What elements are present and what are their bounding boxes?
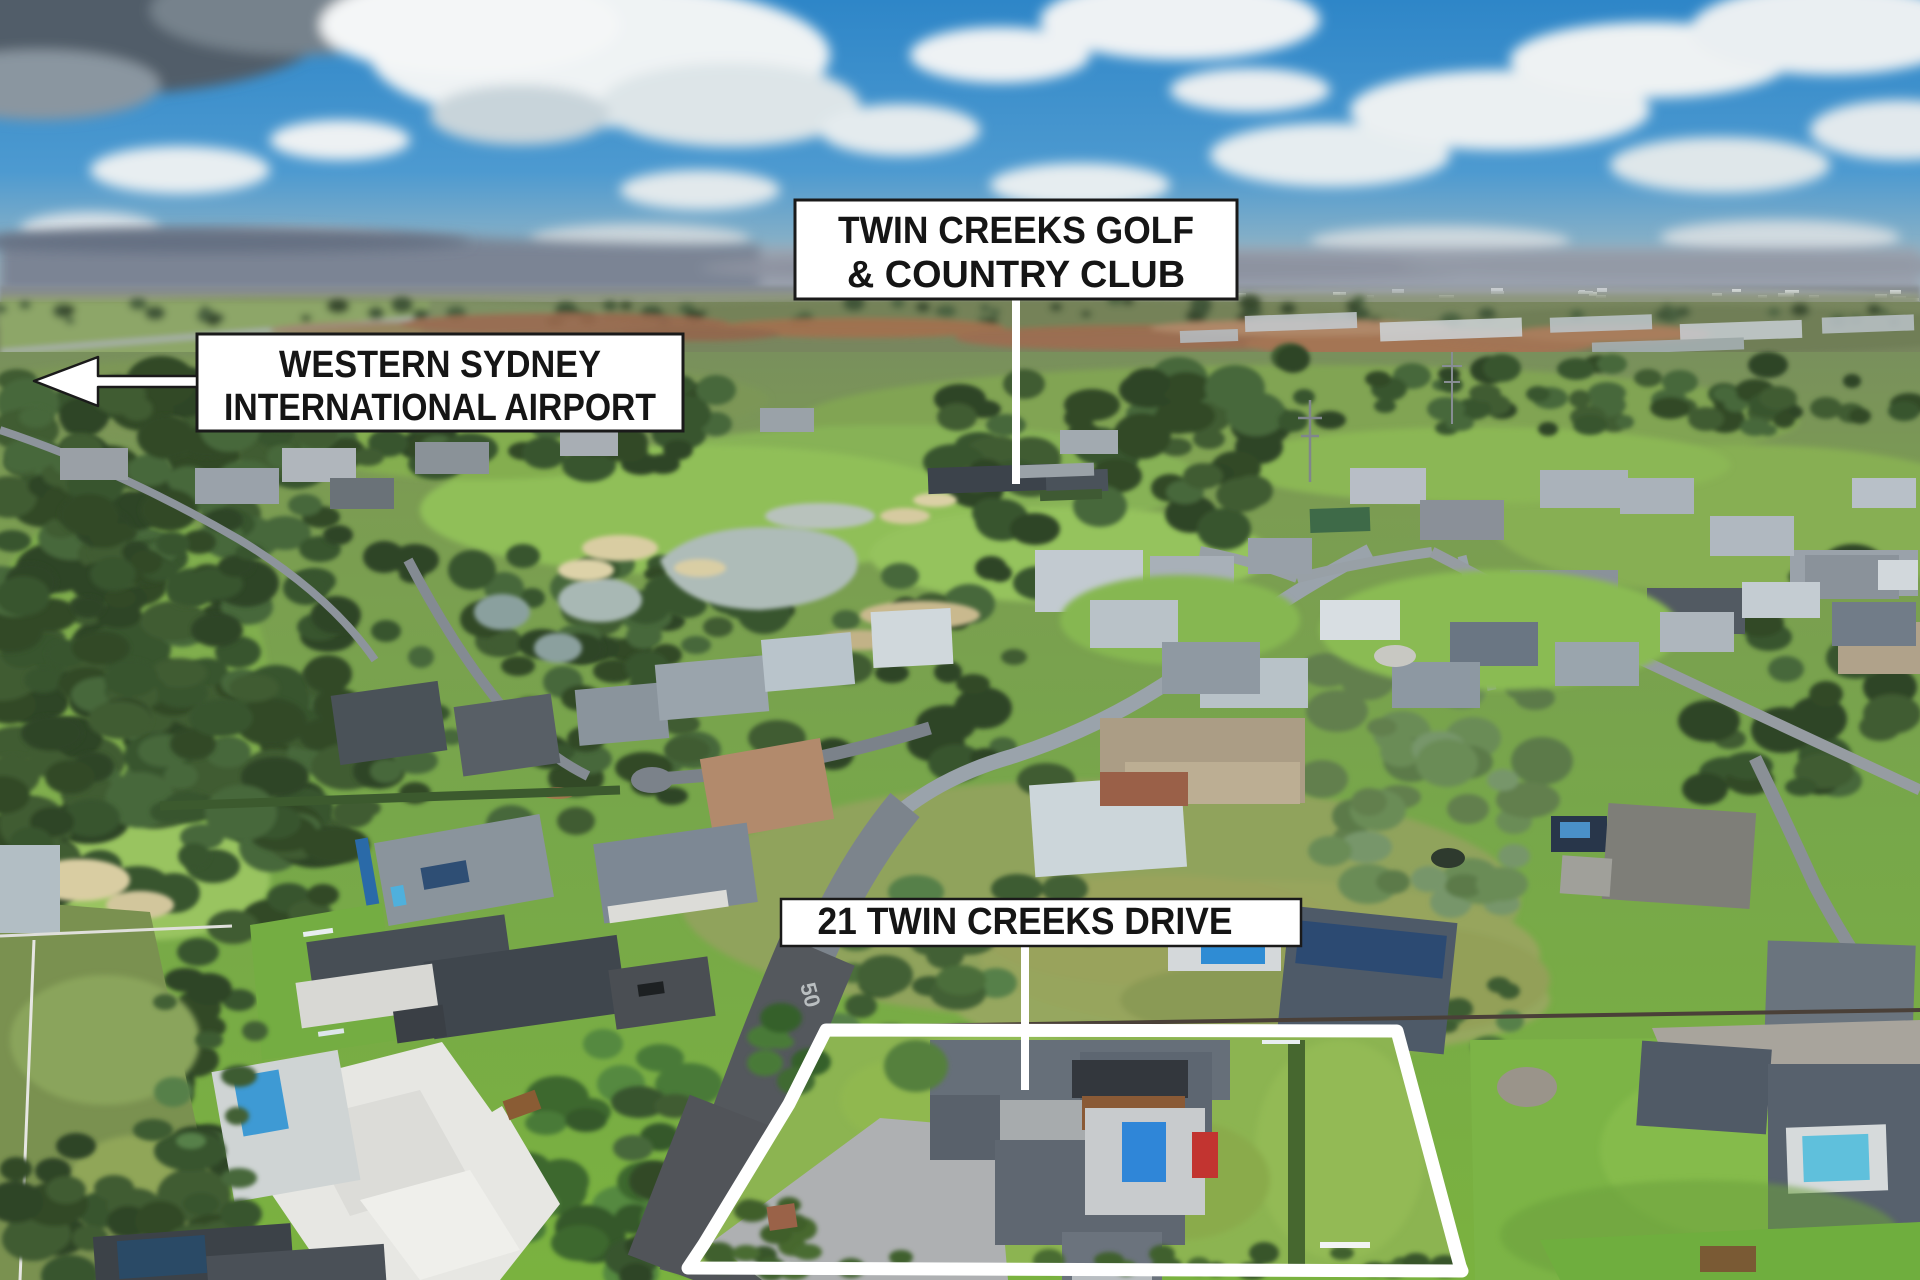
svg-text:WESTERN SYDNEY: WESTERN SYDNEY [279, 344, 601, 386]
svg-text:21 TWIN CREEKS DRIVE: 21 TWIN CREEKS DRIVE [818, 901, 1233, 943]
svg-text:TWIN CREEKS GOLF: TWIN CREEKS GOLF [838, 210, 1194, 252]
svg-text:& COUNTRY CLUB: & COUNTRY CLUB [847, 254, 1185, 296]
svg-text:INTERNATIONAL AIRPORT: INTERNATIONAL AIRPORT [224, 387, 656, 429]
